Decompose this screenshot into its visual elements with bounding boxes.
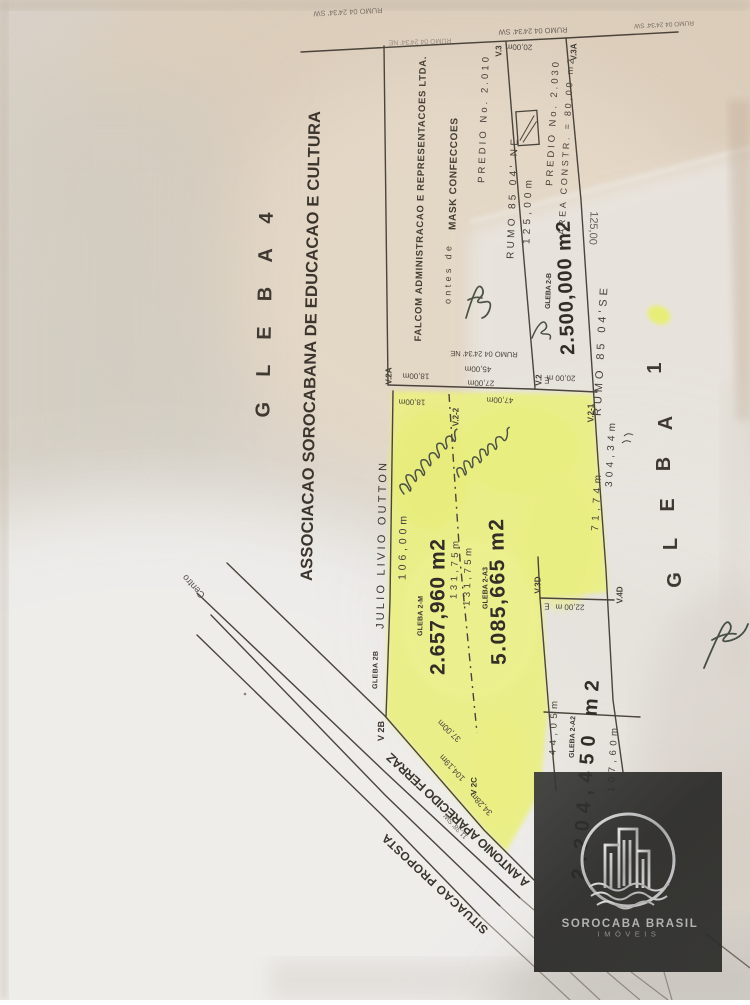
svg-text:47,00m: 47,00m	[486, 395, 513, 404]
svg-text:G: G	[664, 572, 686, 588]
svg-text:SOROCABA BRASIL: SOROCABA BRASIL	[562, 918, 699, 930]
svg-text:V 2C: V 2C	[469, 777, 478, 795]
svg-text:IMÓVEIS: IMÓVEIS	[598, 930, 661, 939]
svg-text:22,00 m: 22,00 m	[555, 602, 584, 612]
svg-text:2.657,960 m2: 2.657,960 m2	[427, 539, 450, 675]
svg-text:GLEBA 2-B: GLEBA 2-B	[545, 273, 553, 309]
svg-text:V.4D: V.4D	[616, 586, 625, 603]
svg-text:GLEBA 2-A2: GLEBA 2-A2	[569, 716, 577, 758]
svg-text:18,00m: 18,00m	[398, 397, 425, 406]
svg-text:18,00m: 18,00m	[402, 371, 429, 380]
svg-text:V.3: V.3	[495, 45, 504, 57]
svg-text:RUMO 04 24'34' NE: RUMO 04 24'34' NE	[450, 349, 518, 359]
svg-text:E: E	[544, 602, 549, 611]
svg-text:V.2-2: V.2-2	[452, 407, 461, 426]
svg-text:5.085,665 m2: 5.085,665 m2	[485, 519, 511, 665]
svg-text:20,00m: 20,00m	[505, 42, 532, 51]
svg-text:27,00m: 27,00m	[467, 378, 494, 387]
svg-text:V.2: V.2	[535, 374, 544, 386]
svg-text:V.2A: V.2A	[385, 367, 394, 384]
svg-text:125,00: 125,00	[586, 211, 599, 245]
svg-text:MASK CONFECCOES: MASK CONFECCOES	[448, 118, 461, 231]
svg-text:45,00m: 45,00m	[464, 364, 491, 373]
svg-text:B: B	[653, 457, 675, 471]
svg-text:20,00 m: 20,00 m	[546, 373, 575, 383]
svg-text:2.500,000 m2: 2.500,000 m2	[553, 221, 580, 356]
svg-text:V.3A: V.3A	[570, 43, 579, 60]
svg-text:GLEBA 2-M: GLEBA 2-M	[417, 596, 425, 636]
svg-text:L: L	[660, 538, 682, 550]
svg-text:GLEBA 2B: GLEBA 2B	[372, 651, 380, 689]
svg-text:1: 1	[644, 362, 666, 373]
svg-text:A: A	[655, 416, 677, 430]
svg-text:V.3D: V.3D	[534, 576, 543, 593]
svg-text:E: E	[657, 498, 679, 511]
svg-text:V 2B: V 2B	[376, 720, 386, 741]
